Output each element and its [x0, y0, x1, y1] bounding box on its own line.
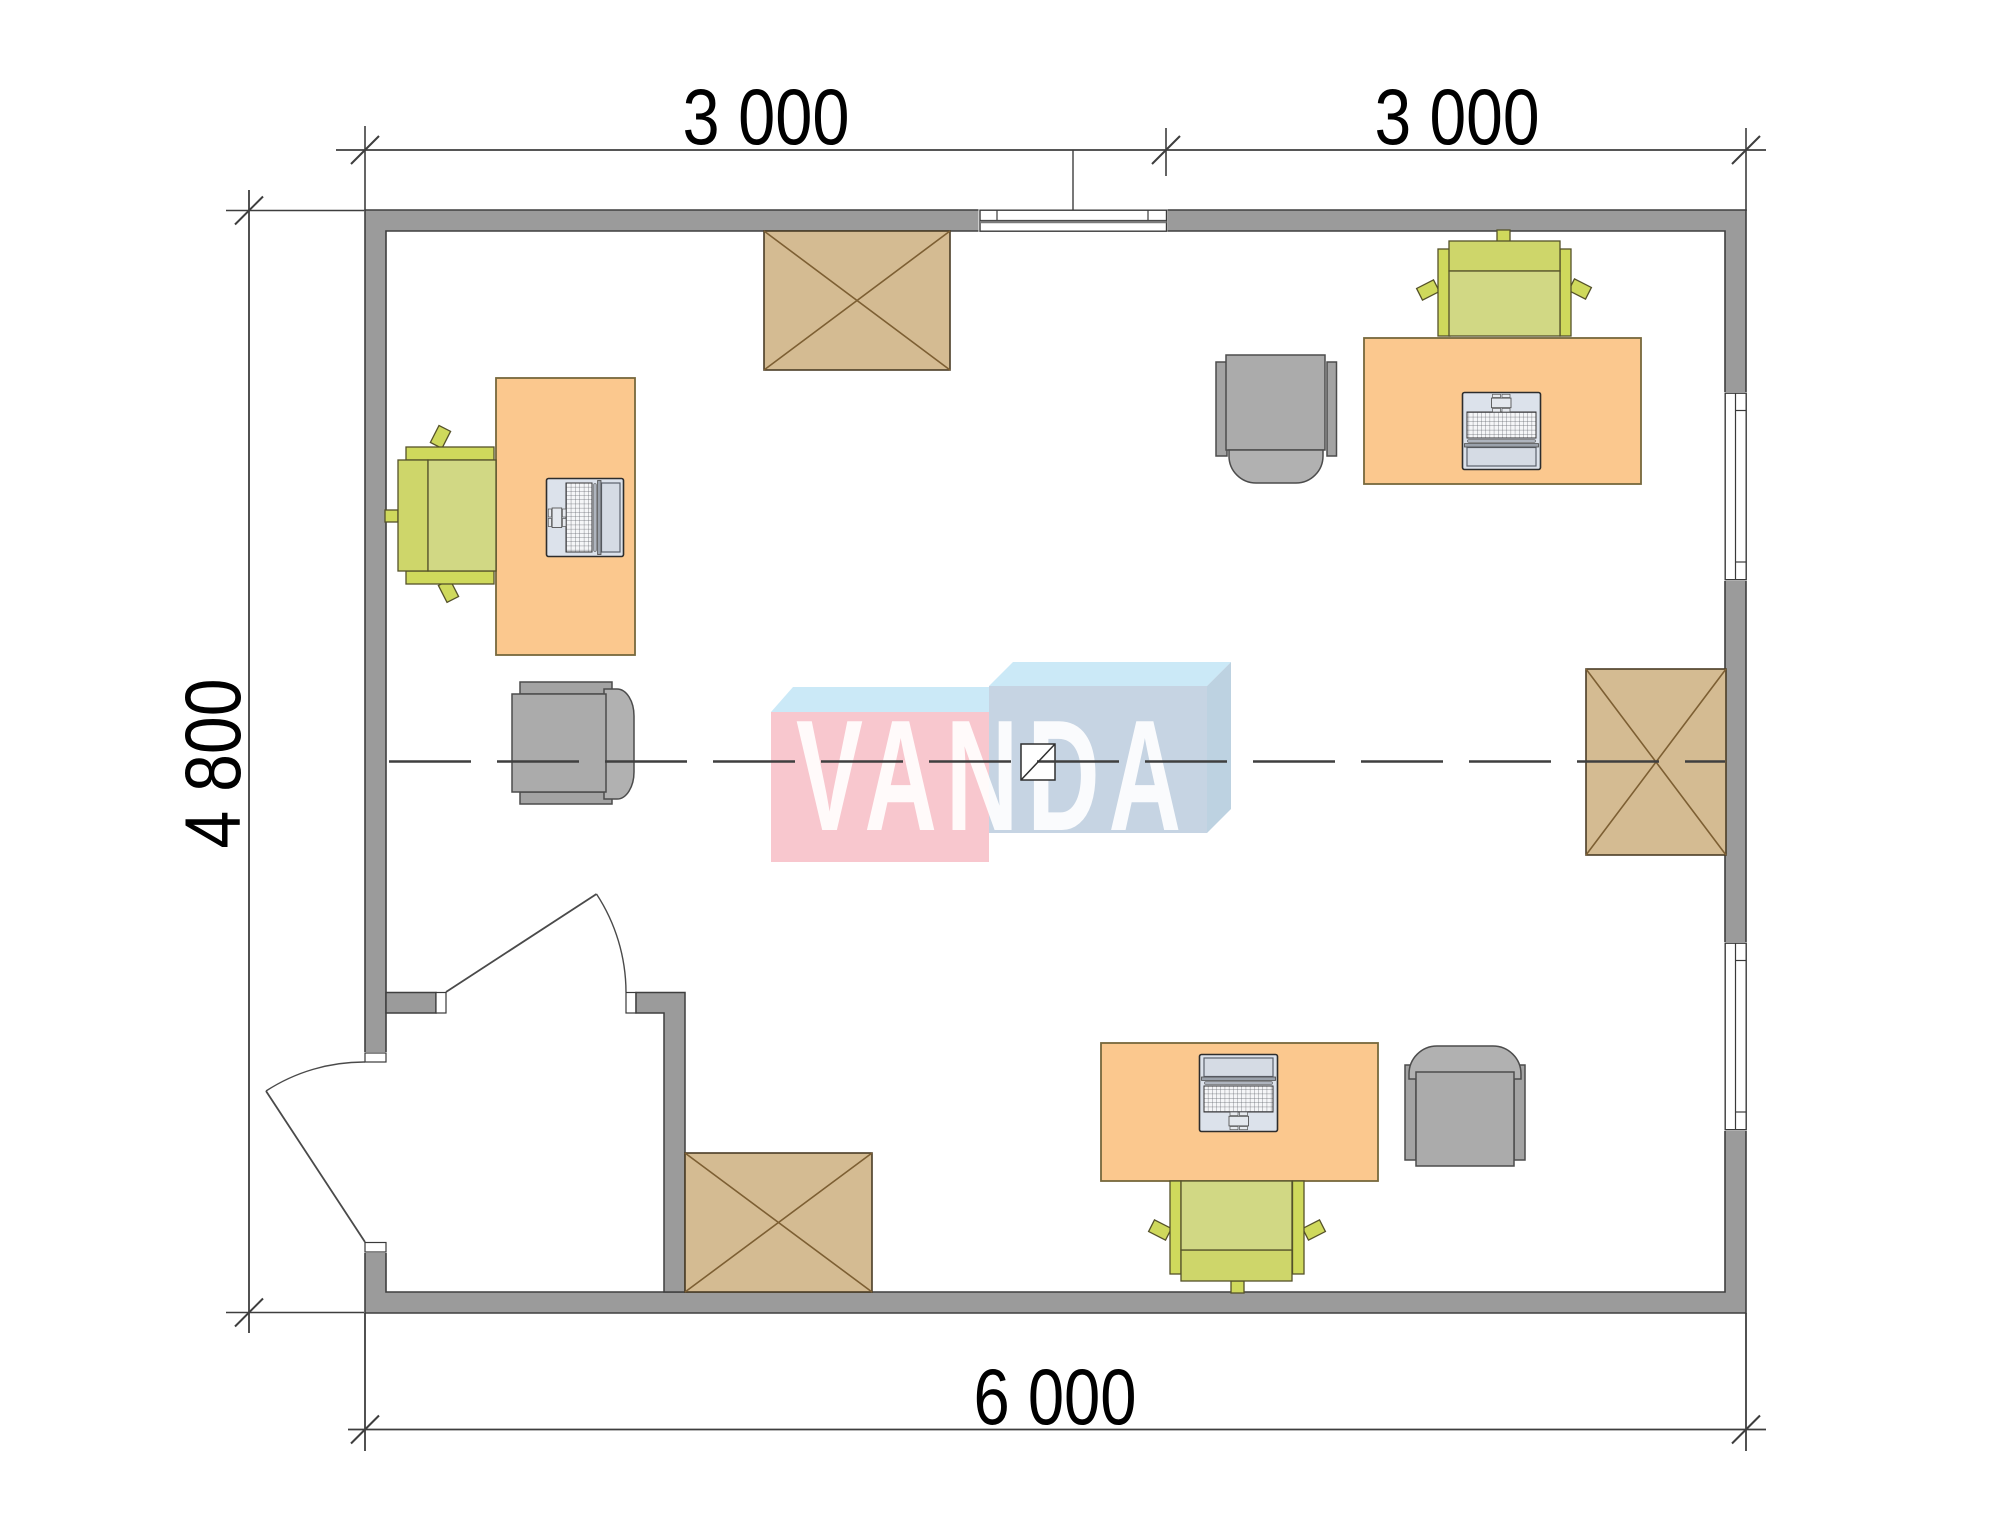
svg-text:4 800: 4 800	[168, 679, 257, 849]
svg-text:3 000: 3 000	[1375, 72, 1540, 161]
svg-text:3 000: 3 000	[683, 72, 850, 161]
svg-text:6 000: 6 000	[974, 1352, 1137, 1441]
svg-text:VANDA: VANDA	[796, 688, 1190, 864]
